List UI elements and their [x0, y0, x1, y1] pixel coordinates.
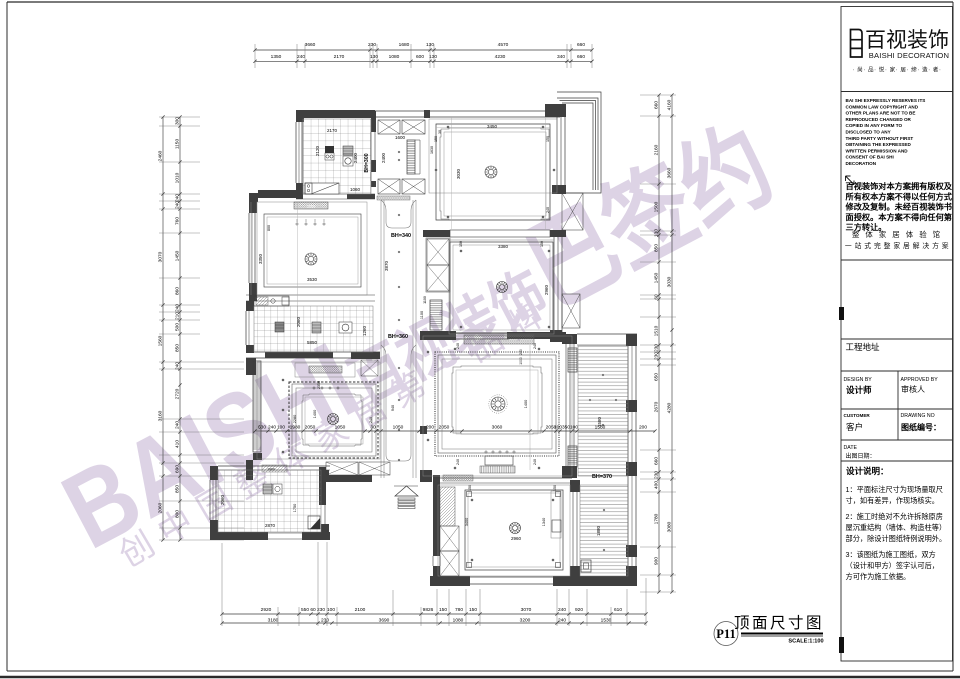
svg-text:整 体 家 居 体 验 馆: 整 体 家 居 体 验 馆	[852, 230, 942, 239]
svg-text:610: 610	[614, 607, 622, 613]
svg-text:3660: 3660	[667, 167, 673, 178]
svg-text:5850: 5850	[307, 340, 318, 345]
svg-text:780: 780	[455, 607, 463, 613]
svg-text:2400: 2400	[381, 152, 386, 163]
svg-text:1060: 1060	[350, 187, 361, 192]
svg-text:REPRODUCED CHANGED OR: REPRODUCED CHANGED OR	[846, 117, 912, 122]
svg-text:1680: 1680	[399, 42, 410, 48]
svg-text:方可作为施工依据。: 方可作为施工依据。	[846, 572, 911, 581]
svg-text:1450: 1450	[654, 272, 660, 283]
svg-text:100: 100	[277, 425, 285, 431]
svg-text:940: 940	[391, 405, 395, 411]
svg-text:400: 400	[654, 481, 660, 489]
svg-text:3070: 3070	[521, 607, 532, 613]
svg-text:WRITTEN PERMISSION AND: WRITTEN PERMISSION AND	[846, 148, 909, 153]
svg-text:OBTAINING THE EXPRESSED: OBTAINING THE EXPRESSED	[846, 142, 912, 147]
svg-text:240: 240	[533, 343, 537, 349]
svg-text:200: 200	[639, 425, 647, 431]
svg-text:130: 130	[429, 54, 437, 60]
svg-text:所有权本方案不得以任何方式: 所有权本方案不得以任何方式	[846, 191, 953, 201]
svg-text:3060: 3060	[492, 425, 503, 431]
svg-text:DECORATION: DECORATION	[846, 161, 877, 166]
svg-text:面授权。本方案不得向任何第: 面授权。本方案不得向任何第	[846, 212, 952, 222]
svg-text:3080: 3080	[667, 521, 673, 532]
svg-text:P11: P11	[716, 627, 735, 641]
svg-text:部分，除设计图纸特例说明外。: 部分，除设计图纸特例说明外。	[846, 534, 947, 543]
svg-text:9826: 9826	[423, 607, 434, 613]
svg-text:410: 410	[175, 440, 181, 448]
svg-text:1510: 1510	[654, 325, 660, 336]
svg-text:2460: 2460	[158, 150, 164, 161]
svg-text:1600: 1600	[395, 135, 406, 140]
svg-text:审核人: 审核人	[901, 384, 925, 394]
svg-text:240: 240	[533, 459, 537, 465]
svg-text:4280: 4280	[667, 402, 673, 413]
svg-text:240: 240	[175, 201, 181, 209]
svg-text:3380: 3380	[498, 244, 509, 249]
svg-text:3530: 3530	[307, 277, 318, 282]
svg-text:SCALE:1:100: SCALE:1:100	[788, 639, 823, 645]
svg-text:850: 850	[654, 244, 660, 252]
svg-text:· 尚· 品· 悦· 家· 居· 缔· 造· 者·: · 尚· 品· 悦· 家· 居· 缔· 造· 者·	[853, 66, 942, 74]
svg-text:3：该图纸为施工图纸，双方: 3：该图纸为施工图纸，双方	[846, 550, 936, 559]
svg-text:210: 210	[175, 312, 181, 320]
svg-text:CONSENT OF BAI SHI: CONSENT OF BAI SHI	[846, 155, 894, 160]
svg-text:顶面尺寸图: 顶面尺寸图	[734, 614, 824, 632]
svg-text:屋沉重结构（墙体、构造柱等）: 屋沉重结构（墙体、构造柱等）	[846, 523, 947, 532]
svg-text:100: 100	[327, 607, 335, 613]
svg-text:240: 240	[175, 362, 181, 370]
svg-text:240: 240	[519, 349, 523, 355]
svg-text:850: 850	[175, 485, 181, 493]
svg-text:BAISHI DECORATION: BAISHI DECORATION	[869, 51, 949, 60]
svg-text:3030: 3030	[456, 168, 461, 179]
svg-text:230: 230	[654, 352, 660, 360]
svg-text:1010: 1010	[175, 172, 181, 183]
svg-text:850: 850	[175, 344, 181, 352]
svg-text:150: 150	[540, 241, 544, 247]
svg-text:3870: 3870	[384, 260, 389, 271]
svg-text:2870: 2870	[265, 523, 276, 528]
svg-text:1750: 1750	[293, 504, 297, 512]
svg-text:1080: 1080	[453, 618, 464, 624]
svg-text:60: 60	[310, 607, 316, 613]
svg-text:1080: 1080	[389, 54, 400, 60]
svg-text:650: 650	[654, 373, 660, 381]
svg-text:COMMON LAW COPYRIGHT AND: COMMON LAW COPYRIGHT AND	[846, 104, 919, 109]
svg-text:2280: 2280	[293, 415, 297, 423]
svg-text:1630: 1630	[430, 146, 434, 154]
svg-text:760: 760	[175, 217, 181, 225]
svg-text:660: 660	[654, 101, 660, 109]
svg-text:1400: 1400	[524, 400, 528, 408]
svg-text:340: 340	[557, 54, 565, 60]
svg-text:图纸编号：: 图纸编号：	[901, 422, 941, 432]
svg-text:1580: 1580	[597, 416, 602, 427]
svg-text:230: 230	[317, 607, 325, 613]
svg-text:设计说明：: 设计说明：	[846, 466, 889, 476]
svg-text:240: 240	[456, 343, 460, 349]
svg-text:3200: 3200	[520, 618, 531, 624]
svg-text:2060: 2060	[158, 502, 164, 513]
svg-text:百视装饰对本方案拥有版权及: 百视装饰对本方案拥有版权及	[846, 181, 953, 191]
svg-text:1880: 1880	[596, 525, 601, 536]
svg-text:3350: 3350	[258, 253, 263, 264]
svg-text:1260: 1260	[362, 325, 367, 336]
svg-text:660: 660	[577, 54, 585, 60]
svg-text:DISCLOSED TO ANY: DISCLOSED TO ANY	[846, 130, 891, 135]
svg-text:1340: 1340	[542, 518, 546, 526]
svg-text:230: 230	[368, 42, 376, 48]
svg-text:240: 240	[456, 459, 460, 465]
svg-text:百视装饰: 百视装饰	[865, 29, 949, 52]
svg-text:3030: 3030	[667, 276, 673, 287]
svg-text:150: 150	[469, 607, 477, 613]
svg-text:920: 920	[575, 607, 583, 613]
svg-text:1780: 1780	[654, 513, 660, 524]
svg-text:客户: 客户	[846, 422, 863, 432]
svg-text:2060: 2060	[296, 316, 301, 327]
svg-text:1050: 1050	[335, 425, 346, 431]
svg-text:4570: 4570	[498, 42, 509, 48]
svg-text:2960: 2960	[511, 536, 522, 541]
svg-text:1560: 1560	[158, 335, 164, 346]
svg-text:BH=300: BH=300	[364, 153, 370, 172]
svg-text:500: 500	[175, 323, 181, 331]
svg-text:2350: 2350	[317, 381, 321, 389]
svg-text:3070: 3070	[158, 251, 164, 262]
svg-text:COPIED IN ANY FORM TO: COPIED IN ANY FORM TO	[846, 123, 903, 128]
svg-text:2170: 2170	[334, 54, 345, 60]
svg-text:设计师: 设计师	[846, 385, 872, 395]
svg-text:4160: 4160	[667, 99, 673, 110]
svg-text:150: 150	[434, 136, 438, 142]
svg-text:3450: 3450	[487, 124, 498, 129]
svg-text:1530: 1530	[601, 618, 612, 624]
svg-text:1350: 1350	[271, 54, 282, 60]
svg-text:OTHER PLANS ARE NOT TO BE: OTHER PLANS ARE NOT TO BE	[846, 111, 916, 116]
svg-text:BH=340: BH=340	[391, 233, 411, 239]
svg-text:2100: 2100	[355, 607, 366, 613]
svg-text:630: 630	[258, 425, 266, 431]
svg-text:2050: 2050	[439, 425, 450, 431]
svg-text:DESIGN BY: DESIGN BY	[844, 377, 873, 383]
svg-text:1980: 1980	[290, 425, 301, 431]
svg-text:150: 150	[439, 607, 447, 613]
svg-text:900: 900	[654, 557, 660, 565]
svg-text:CUSTOMER: CUSTOMER	[844, 413, 871, 418]
svg-text:APPROVED BY: APPROVED BY	[901, 377, 939, 383]
svg-text:2400: 2400	[353, 152, 358, 163]
svg-text:800: 800	[175, 510, 181, 518]
svg-text:寸，如有差异，作现场核实。: 寸，如有差异，作现场核实。	[846, 496, 939, 505]
svg-text:300: 300	[175, 117, 181, 125]
svg-text:1150: 1150	[175, 139, 181, 150]
svg-text:2670: 2670	[654, 401, 660, 412]
svg-text:2120: 2120	[315, 145, 320, 156]
svg-text:修改及复制。未经百视装饰书: 修改及复制。未经百视装饰书	[845, 202, 953, 212]
svg-text:240: 240	[558, 618, 566, 624]
svg-text:BH=370: BH=370	[592, 474, 612, 480]
svg-text:150: 150	[459, 241, 463, 247]
svg-text:THIRD PARTY WITHOUT FIRST: THIRD PARTY WITHOUT FIRST	[846, 136, 914, 141]
svg-text:1450: 1450	[175, 250, 181, 261]
svg-text:150: 150	[553, 485, 557, 491]
svg-text:3400: 3400	[465, 518, 469, 526]
svg-text:240: 240	[558, 607, 566, 613]
svg-text:2170: 2170	[327, 128, 338, 133]
svg-text:150: 150	[546, 136, 550, 142]
svg-text:出图日期：: 出图日期：	[846, 452, 876, 460]
svg-text:240: 240	[297, 54, 305, 60]
svg-text:1400: 1400	[313, 410, 317, 418]
svg-text:550: 550	[301, 607, 309, 613]
svg-text:800: 800	[267, 225, 271, 231]
svg-text:150: 150	[468, 485, 472, 491]
svg-text:30: 30	[438, 130, 442, 134]
svg-text:3160: 3160	[158, 410, 164, 421]
svg-text:1100: 1100	[420, 311, 424, 319]
svg-text:2720: 2720	[175, 388, 181, 399]
svg-text:3690: 3690	[379, 618, 390, 624]
svg-text:2960: 2960	[544, 284, 549, 295]
svg-text:DRAWING NO: DRAWING NO	[901, 413, 935, 419]
svg-text:2920: 2920	[261, 607, 272, 613]
svg-text:BAI SHI EXPRESSLY RESERVES ITS: BAI SHI EXPRESSLY RESERVES ITS	[846, 98, 926, 103]
svg-text:BAISHI百视装饰巴签约: BAISHI百视装饰巴签约	[45, 102, 791, 572]
svg-text:240: 240	[175, 194, 181, 202]
svg-text:240: 240	[175, 421, 181, 429]
svg-text:工程地址: 工程地址	[846, 342, 881, 352]
svg-text:240: 240	[546, 207, 550, 213]
svg-text:3650: 3650	[307, 205, 315, 209]
svg-text:1500: 1500	[654, 201, 660, 212]
svg-text:30: 30	[370, 425, 376, 431]
svg-text:3180: 3180	[268, 618, 279, 624]
svg-text:1：平面标注尺寸为现场量取尺: 1：平面标注尺寸为现场量取尺	[846, 485, 943, 494]
svg-text:240: 240	[369, 417, 373, 423]
svg-text:2：施工时绝对不允许拆除原房: 2：施工时绝对不允许拆除原房	[846, 512, 943, 521]
svg-text:（设计和甲方）签字认可后，: （设计和甲方）签字认可后，	[846, 561, 939, 570]
svg-text:3660: 3660	[305, 42, 316, 48]
svg-text:BH=360: BH=360	[388, 334, 408, 340]
svg-text:200: 200	[426, 425, 434, 431]
svg-text:2160: 2160	[654, 144, 660, 155]
svg-text:660: 660	[577, 42, 585, 48]
svg-text:860: 860	[175, 287, 181, 295]
svg-text:2060: 2060	[220, 494, 225, 505]
svg-text:660: 660	[654, 457, 660, 465]
svg-text:240: 240	[268, 425, 276, 431]
svg-text:600: 600	[416, 54, 424, 60]
svg-text:4230: 4230	[495, 54, 506, 60]
svg-text:一 站 式 完 整 家 居 解 决 方 案: 一 站 式 完 整 家 居 解 决 方 案	[845, 241, 949, 250]
svg-text:DATE: DATE	[844, 445, 858, 451]
svg-text:130: 130	[654, 229, 660, 237]
svg-text:690: 690	[175, 465, 181, 473]
svg-text:230: 230	[321, 618, 329, 624]
svg-text:1100: 1100	[423, 296, 427, 304]
svg-text:1000: 1000	[519, 357, 523, 365]
svg-text:2050: 2050	[305, 425, 316, 431]
